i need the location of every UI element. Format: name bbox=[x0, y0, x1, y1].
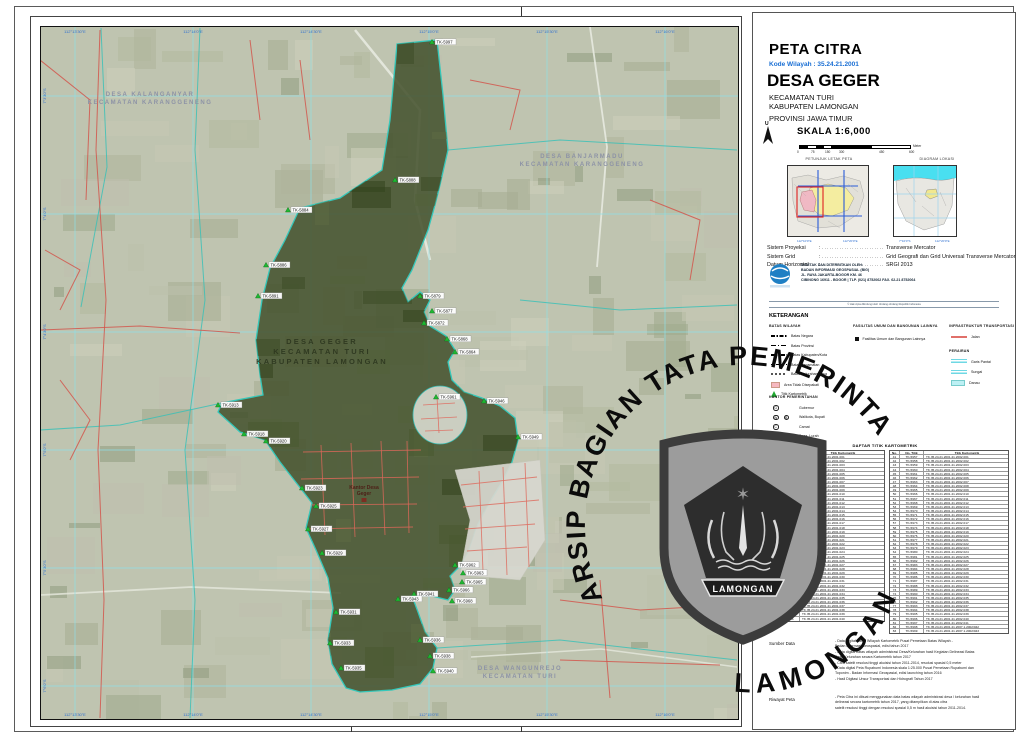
svg-text:TK-5879: TK-5879 bbox=[425, 293, 442, 298]
svg-text:TK-5923: TK-5923 bbox=[307, 485, 324, 490]
kartometrik-table-right: No.No. TitikTitik Kartometrik41TK-5957TK… bbox=[889, 450, 1009, 634]
svg-text:TK-5997: TK-5997 bbox=[437, 39, 454, 44]
svg-text:TK-5927: TK-5927 bbox=[313, 526, 330, 531]
legend-kantor-item: DLDesa, Lurah bbox=[773, 434, 819, 440]
svg-text:112°15'30"E: 112°15'30"E bbox=[536, 712, 558, 717]
legend-infra-title: INFRASTRUKTUR TRANSPORTASI bbox=[949, 324, 1019, 328]
office-symbol: W bbox=[773, 415, 779, 421]
svg-text:TK-5962: TK-5962 bbox=[460, 562, 477, 567]
district-line: KECAMATAN TURI bbox=[769, 93, 834, 102]
svg-text:TK-5886: TK-5886 bbox=[271, 262, 288, 267]
projection-label: Sistem Proyeksi bbox=[767, 245, 819, 251]
svg-text:TK-5946: TK-5946 bbox=[489, 398, 506, 403]
scale-label: SKALA 1:6,000 bbox=[797, 126, 871, 137]
disputed-area-symbol bbox=[771, 382, 780, 388]
satellite-map: DESA KALANGANYARKECAMATAN KARANGGENENGDE… bbox=[41, 27, 738, 719]
scale-tick: 450 bbox=[879, 150, 884, 154]
legend-batas-item: Batas Kelurahan/Desa bbox=[771, 372, 827, 376]
projection-value: Grid Geografi dan Grid Universal Transve… bbox=[886, 254, 1015, 260]
legend-batas-title: BATAS WILAYAH bbox=[769, 324, 801, 328]
building-symbol bbox=[855, 337, 859, 341]
projection-label: Sistem Grid bbox=[767, 254, 819, 260]
scale-tick: 0 bbox=[797, 150, 799, 154]
lake-symbol bbox=[951, 380, 965, 386]
legend-batas-item: Batas Kabupaten/Kota bbox=[771, 353, 827, 357]
svg-text:112°16'0"E: 112°16'0"E bbox=[655, 712, 675, 717]
north-arrow-icon bbox=[761, 126, 775, 146]
svg-text:DESA KALANGANYAR: DESA KALANGANYAR bbox=[106, 92, 195, 98]
svg-text:TK-5868: TK-5868 bbox=[452, 336, 469, 341]
legend-title: KETERANGAN bbox=[769, 313, 808, 319]
scale-bar bbox=[799, 145, 911, 149]
svg-text:TK-5929: TK-5929 bbox=[327, 550, 344, 555]
svg-text:TK-5872: TK-5872 bbox=[429, 320, 446, 325]
boundary-line-symbol bbox=[771, 354, 787, 356]
svg-text:Geger: Geger bbox=[357, 491, 372, 497]
svg-text:KECAMATAN KARANGGENENG: KECAMATAN KARANGGENENG bbox=[520, 162, 645, 168]
svg-text:TK-5920: TK-5920 bbox=[271, 438, 288, 443]
regency-line: KABUPATEN LAMONGAN bbox=[769, 102, 858, 111]
svg-text:112°14'30"E: 112°14'30"E bbox=[300, 712, 322, 717]
legend-kantor-item: GGubernur bbox=[773, 405, 814, 411]
svg-text:112°15'0"E: 112°15'0"E bbox=[419, 29, 439, 34]
svg-text:TK-5935: TK-5935 bbox=[346, 665, 363, 670]
svg-text:TK-5925: TK-5925 bbox=[321, 503, 338, 508]
svg-text:TK-5961: TK-5961 bbox=[441, 394, 458, 399]
svg-text:TK-5931: TK-5931 bbox=[341, 609, 358, 614]
svg-text:7°4'0"S: 7°4'0"S bbox=[42, 207, 47, 220]
svg-text:TK-5949: TK-5949 bbox=[523, 434, 540, 439]
legend-jalan-item: Jalan bbox=[951, 335, 980, 339]
map-frame: DESA KALANGANYARKECAMATAN KARANGGENENGDE… bbox=[30, 16, 742, 727]
inset-letak-peta bbox=[787, 165, 869, 237]
legend-batas-item: Batas Negara bbox=[771, 334, 813, 338]
riwayat-line: satelit resolusi tinggi dengan resolusi … bbox=[835, 706, 1010, 711]
table-row: 83TK-5999TK.35.24.21.2001.21.2007.1.2002… bbox=[890, 629, 1008, 633]
svg-text:KABUPATEN LAMONGAN: KABUPATEN LAMONGAN bbox=[256, 357, 388, 366]
svg-text:TK-5918: TK-5918 bbox=[249, 431, 266, 436]
kartometrik-table-title: DAFTAR TITIK KARTOMETRIK bbox=[769, 443, 1001, 448]
riwayat-peta-lines: - Peta Citra ini dibuat menggunakan data… bbox=[835, 695, 1010, 711]
svg-text:TK-5966: TK-5966 bbox=[454, 587, 471, 592]
svg-text:TK-5943: TK-5943 bbox=[403, 596, 420, 601]
copyright-note: © Hak cipta dilindungi oleh Undang-Undan… bbox=[769, 301, 999, 308]
kode-wilayah: Kode Wilayah : 35.24.21.2001 bbox=[769, 61, 859, 68]
svg-text:7°3'30"S: 7°3'30"S bbox=[42, 88, 47, 104]
publisher-line: CIBINONG 16911 - BOGOR | TLP. (021) 8752… bbox=[801, 278, 915, 283]
legend-kantor-title: KANTOR PEMERINTAHAN bbox=[769, 395, 818, 399]
svg-text:TK-5938: TK-5938 bbox=[435, 653, 452, 658]
svg-text:112°13'30"E: 112°13'30"E bbox=[64, 712, 86, 717]
inset-right-coord-2: 112°20'0"E bbox=[935, 239, 950, 243]
water-line-symbol bbox=[951, 370, 967, 375]
svg-text:7°5'30"S: 7°5'30"S bbox=[42, 560, 47, 576]
svg-text:TK-5891: TK-5891 bbox=[263, 293, 280, 298]
legend-batas-item: Area Tidak Disepakati bbox=[771, 382, 819, 388]
legend-perairan-title: PERAIRAN bbox=[949, 349, 969, 353]
svg-text:112°14'0"E: 112°14'0"E bbox=[183, 712, 203, 717]
svg-text:DESA BANJARMADU: DESA BANJARMADU bbox=[540, 154, 624, 160]
legend-batas-item: Batas Kecamatan bbox=[771, 363, 819, 367]
legend-perairan-item: Danau bbox=[951, 380, 980, 386]
office-symbol: C bbox=[773, 424, 779, 430]
office-symbol: B bbox=[784, 415, 790, 421]
legend-perairan-item: Garis Pantai bbox=[951, 359, 991, 364]
svg-text:DESA WANGUNREJO: DESA WANGUNREJO bbox=[478, 666, 562, 672]
inset-left-title: PETUNJUK LETAK PETA bbox=[773, 157, 885, 161]
svg-text:112°13'30"E: 112°13'30"E bbox=[64, 29, 86, 34]
projection-row: Sistem Proyeksi: .......................… bbox=[767, 245, 1017, 251]
sumber-data-label: Sumber Data bbox=[769, 641, 795, 646]
legend-kantor-item: WBWalikota, Bupati bbox=[773, 415, 825, 421]
office-symbol: D bbox=[773, 434, 779, 440]
boundary-line-symbol bbox=[771, 364, 787, 366]
inset-right-title: DIAGRAM LOKASI bbox=[881, 157, 993, 161]
big-logo-icon bbox=[767, 263, 793, 289]
office-symbol: L bbox=[784, 434, 790, 440]
map-sheet: DESA KALANGANYARKECAMATAN KARANGGENENGDE… bbox=[0, 0, 1024, 739]
map-type-title: PETA CITRA bbox=[769, 41, 862, 58]
legend-fasilitas-item: Fasilitas Umum dan Bangunan Lainnya bbox=[855, 337, 925, 341]
scale-tick: 600 bbox=[909, 150, 914, 154]
road-symbol bbox=[951, 336, 967, 339]
svg-text:TK-5884: TK-5884 bbox=[293, 207, 310, 212]
inset-diagram-lokasi bbox=[893, 165, 957, 237]
svg-text:112°15'0"E: 112°15'0"E bbox=[419, 712, 439, 717]
scale-tick: 75 bbox=[811, 150, 815, 154]
svg-text:KECAMATAN TURI: KECAMATAN TURI bbox=[483, 674, 557, 680]
svg-text:TK-5913: TK-5913 bbox=[223, 402, 240, 407]
svg-text:KECAMATAN TURI: KECAMATAN TURI bbox=[273, 347, 371, 356]
legend-perairan-item: Sungai bbox=[951, 370, 982, 375]
sumber-line: - Hasil Digitasi Unsur Transportasi dan … bbox=[835, 677, 1010, 682]
svg-text:TK-5940: TK-5940 bbox=[438, 668, 455, 673]
boundary-line-symbol bbox=[771, 373, 787, 375]
projection-row: Sistem Grid: ......................... G… bbox=[767, 254, 1017, 260]
svg-text:TK-5888: TK-5888 bbox=[400, 177, 417, 182]
table-row: 40TK-5956TK.35.24.21.2001.21.2001.040 bbox=[766, 617, 884, 621]
svg-text:112°16'0"E: 112°16'0"E bbox=[655, 29, 675, 34]
info-panel: PETA CITRA Kode Wilayah : 35.24.21.2001 … bbox=[752, 12, 1016, 730]
svg-text:7°4'30"S: 7°4'30"S bbox=[42, 324, 47, 340]
svg-text:TK-5864: TK-5864 bbox=[460, 349, 477, 354]
scale-tick: 150 bbox=[825, 150, 830, 154]
svg-text:TK-5933: TK-5933 bbox=[335, 640, 352, 645]
svg-text:TK-5936: TK-5936 bbox=[425, 637, 442, 642]
boundary-line-symbol bbox=[771, 345, 787, 347]
sumber-data-lines: - Data Digital Batas Wilayah Kartometrik… bbox=[835, 639, 1010, 682]
kartometrik-table-left: No.No. TitikTitik Kartometrik1TK-5917TK.… bbox=[765, 450, 885, 622]
svg-text:TK-5877: TK-5877 bbox=[437, 308, 454, 313]
boundary-line-symbol bbox=[771, 335, 787, 337]
map-neatline: DESA KALANGANYARKECAMATAN KARANGGENENGDE… bbox=[40, 26, 739, 720]
svg-text:TK-5965: TK-5965 bbox=[467, 579, 484, 584]
svg-text:DESA GEGER: DESA GEGER bbox=[286, 337, 358, 346]
scale-tick: 300 bbox=[839, 150, 844, 154]
legend-fasilitas-title: FASILITAS UMUM DAN BANGUNAN LAINNYA bbox=[853, 324, 943, 328]
water-line-symbol bbox=[951, 359, 967, 364]
inset-left-coord-2: 112°20'0"E bbox=[843, 239, 858, 243]
svg-text:112°14'30"E: 112°14'30"E bbox=[300, 29, 322, 34]
svg-text:112°15'30"E: 112°15'30"E bbox=[536, 29, 558, 34]
svg-text:KECAMATAN KARANGGENENG: KECAMATAN KARANGGENENG bbox=[88, 100, 213, 106]
province-line: PROVINSI JAWA TIMUR bbox=[769, 114, 852, 123]
inset-left-coord-1: 112°10'0"E bbox=[797, 239, 812, 243]
legend-batas-item: Batas Provinsi bbox=[771, 344, 814, 348]
village-title: DESA GEGER bbox=[767, 71, 880, 91]
inset-right-coord-1: 7°10'0"S bbox=[899, 239, 911, 243]
svg-text:7°5'0"S: 7°5'0"S bbox=[42, 443, 47, 456]
svg-text:TK-5968: TK-5968 bbox=[457, 598, 474, 603]
svg-text:112°14'0"E: 112°14'0"E bbox=[183, 29, 203, 34]
office-symbol: G bbox=[773, 405, 779, 411]
riwayat-peta-label: Riwayat Peta bbox=[769, 697, 795, 702]
svg-text:TK-5963: TK-5963 bbox=[468, 570, 485, 575]
scale-unit: Meter bbox=[913, 144, 921, 148]
svg-text:7°6'0"S: 7°6'0"S bbox=[42, 679, 47, 692]
legend-kantor-item: CCamat bbox=[773, 424, 810, 430]
projection-value: Transverse Mercator bbox=[886, 245, 936, 251]
publisher-block: DICETAK DAN DITERBITKAN OLEH: BADAN INFO… bbox=[801, 263, 915, 283]
